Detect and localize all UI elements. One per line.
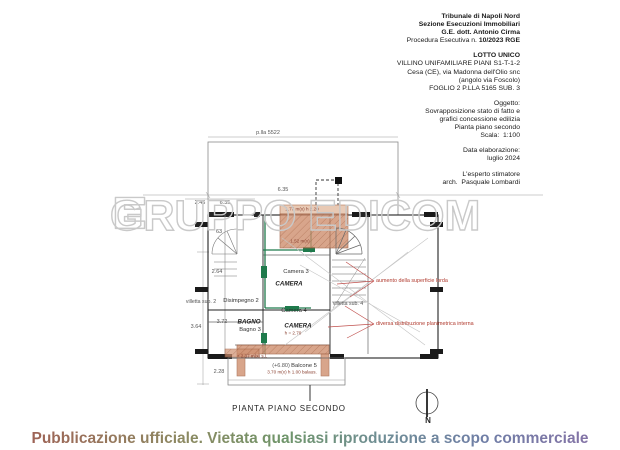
terrace-outline bbox=[208, 137, 398, 215]
dashed-marker-box bbox=[316, 177, 342, 208]
plan-label: 1.52 m(x) bbox=[290, 239, 309, 244]
floor-plan-drawing bbox=[0, 0, 620, 450]
plan-label: h = 2.70 bbox=[285, 331, 302, 336]
plan-label: 2.28 bbox=[214, 369, 225, 375]
plan-label: diversa distribuzione planimetrica inter… bbox=[376, 321, 474, 327]
plan-label: 2.46 bbox=[195, 200, 206, 206]
plan-label: 1.77 m(x) h 2.20 bbox=[285, 207, 318, 212]
plan-label: Camera 3 bbox=[283, 269, 308, 275]
plan-label: Bagno 3 bbox=[239, 327, 261, 333]
north-arrow-icon bbox=[416, 389, 438, 417]
publication-banner: Pubblicazione ufficiale. Vietata qualsia… bbox=[0, 428, 620, 450]
plan-label: Disimpegno 2 bbox=[223, 298, 258, 304]
plan-label: villetta sub. 4 bbox=[333, 301, 363, 307]
plan-label: Balcone 5 bbox=[291, 363, 317, 369]
north-label: N bbox=[421, 416, 435, 425]
plan-label: 6.35 bbox=[220, 200, 231, 206]
plan-label: 6.35 bbox=[278, 187, 289, 193]
plan-label: aumento della superficie lorda bbox=[376, 278, 448, 284]
drawing-caption: PIANTA PIANO SECONDO bbox=[205, 404, 373, 413]
plan-label: 3.72 bbox=[217, 319, 228, 325]
plan-label: p.lla 5522 bbox=[256, 130, 280, 136]
plan-label: CAMERA bbox=[275, 281, 302, 288]
plan-label: Camera 4 bbox=[281, 308, 306, 314]
plan-label: 63 bbox=[216, 229, 222, 235]
plan-label: 2.64 bbox=[212, 269, 223, 275]
plan-label: 3.70 m(x) h 1.00 balaus. bbox=[267, 370, 317, 375]
plan-label: 3.64 bbox=[191, 324, 202, 330]
plan-label: + 2.37 m(x) s.l. bbox=[237, 354, 268, 359]
document-page: Tribunale di Napoli NordSezione Esecuzio… bbox=[0, 0, 620, 450]
leader-lines-red bbox=[328, 262, 374, 338]
plan-label: (+6.80) bbox=[272, 363, 290, 369]
plan-label: BAGNO bbox=[237, 319, 260, 326]
plan-label: CAMERA bbox=[284, 323, 311, 330]
plan-label: villetta sub. 2 bbox=[186, 299, 216, 305]
